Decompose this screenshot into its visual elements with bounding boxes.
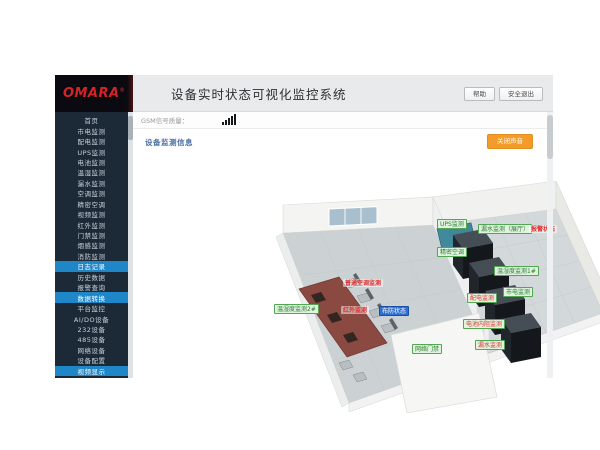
device-label-battery[interactable]: 电池内阻监测: [463, 319, 505, 329]
gsm-signal-label: GSM信号质量：: [141, 115, 188, 125]
mute-sound-button[interactable]: 关闭声音: [487, 134, 533, 149]
help-button[interactable]: 帮助: [464, 87, 495, 101]
sidebar-item-10[interactable]: 红外监测: [55, 219, 128, 229]
sidebar-item-12[interactable]: 烟感监测: [55, 240, 128, 250]
device-label-ups[interactable]: UPS监测: [437, 219, 467, 229]
device-label-infrared[interactable]: 红外监测: [341, 306, 369, 314]
sidebar-item-3[interactable]: UPS监测: [55, 146, 128, 156]
section-header-row: 设备监测信息 关闭声音: [133, 129, 547, 155]
sidebar-item-1[interactable]: 市电监测: [55, 125, 128, 135]
section-title: 设备监测信息: [145, 137, 193, 148]
page-title: 设备实时状态可视化监控系统: [171, 84, 347, 103]
content-scrollbar-thumb[interactable]: [547, 115, 553, 159]
sidebar-item-15[interactable]: 历史数据: [55, 272, 128, 282]
sidebar-menu: 首页市电监测配电监测UPS监测电池监测温湿监测漏水监测空调监测精密空调视频监测红…: [55, 112, 128, 378]
sidebar-item-17[interactable]: 数据转换: [55, 292, 128, 302]
signal-strength-icon: [222, 115, 236, 125]
device-label-leak2[interactable]: 漏水监测: [475, 340, 505, 350]
sidebar-item-0[interactable]: 首页: [55, 115, 128, 125]
sidebar-item-2[interactable]: 配电监测: [55, 136, 128, 146]
device-label-normal_ac[interactable]: 普通空调监测: [343, 279, 383, 287]
device-label-door[interactable]: 网络门禁: [412, 344, 442, 354]
safe-logout-button[interactable]: 安全退出: [499, 87, 543, 101]
device-label-leak_hall[interactable]: 漏水监测（展厅）: [478, 224, 532, 234]
main-content: GSM信号质量： 设备监测信息 关闭声音: [133, 112, 553, 378]
sidebar-item-5[interactable]: 温湿监测: [55, 167, 128, 177]
gsm-status-bar: GSM信号质量：: [133, 112, 547, 129]
sidebar-item-23[interactable]: 设备配置: [55, 355, 128, 365]
sidebar-item-11[interactable]: 门禁监测: [55, 230, 128, 240]
sidebar-item-21[interactable]: 485设备: [55, 334, 128, 344]
sidebar-item-8[interactable]: 精密空调: [55, 199, 128, 209]
device-label-mains[interactable]: 市电监测: [503, 287, 533, 297]
sidebar-item-4[interactable]: 电池监测: [55, 157, 128, 167]
device-label-temp2[interactable]: 温湿度监测2#: [274, 304, 319, 314]
sidebar-item-7[interactable]: 空调监测: [55, 188, 128, 198]
app-window: OMARA® 设备实时状态可视化监控系统 帮助 安全退出 首页市电监测配电监测U…: [55, 75, 553, 378]
sidebar-item-14[interactable]: 日志记录: [55, 261, 128, 271]
header-button-group: 帮助 安全退出: [464, 87, 543, 101]
brand-logo: OMARA®: [63, 86, 125, 101]
logo-banner: OMARA®: [55, 75, 133, 112]
sidebar-item-19[interactable]: AI/DO设备: [55, 313, 128, 323]
device-label-temp1[interactable]: 温湿度监测1#: [494, 266, 539, 276]
sidebar-item-18[interactable]: 平台监控: [55, 303, 128, 313]
sidebar-item-16[interactable]: 报警查询: [55, 282, 128, 292]
device-label-dist[interactable]: 配电监测: [467, 293, 497, 303]
device-label-precision_ac[interactable]: 精密空调: [437, 247, 467, 257]
sidebar-item-9[interactable]: 视频监测: [55, 209, 128, 219]
sidebar-item-20[interactable]: 232设备: [55, 324, 128, 334]
sidebar-item-24[interactable]: 视频显示: [55, 366, 128, 376]
sidebar-item-6[interactable]: 漏水监测: [55, 178, 128, 188]
content-scrollbar[interactable]: [547, 112, 553, 378]
registered-mark-icon: ®: [120, 88, 126, 94]
device-label-armed[interactable]: 布防状态: [379, 306, 409, 316]
sidebar-item-13[interactable]: 消防监测: [55, 251, 128, 261]
header-bar: 设备实时状态可视化监控系统 帮助 安全退出: [133, 75, 553, 112]
sidebar-item-22[interactable]: 网络设备: [55, 345, 128, 355]
